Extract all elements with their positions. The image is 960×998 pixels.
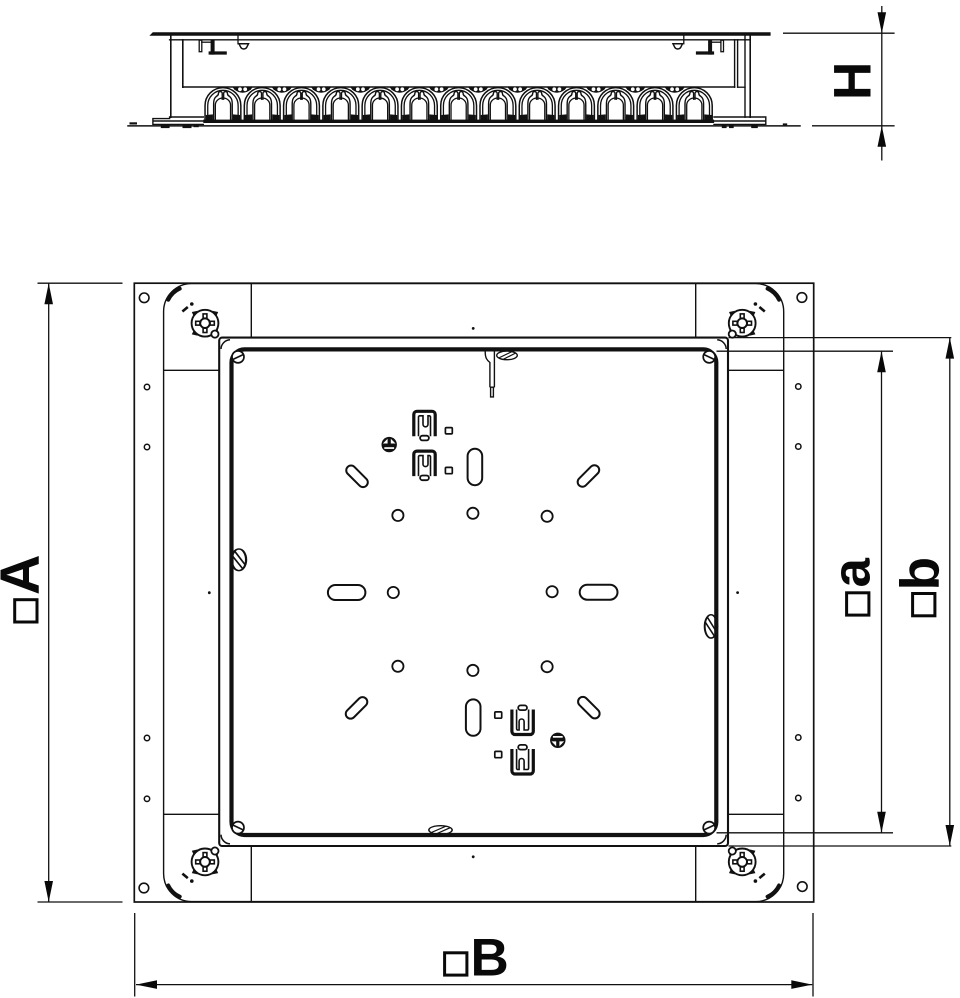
- svg-text:A: A: [0, 555, 51, 595]
- svg-text:a: a: [823, 558, 882, 588]
- svg-text:b: b: [889, 557, 951, 591]
- svg-text:H: H: [824, 62, 883, 100]
- svg-text:B: B: [471, 929, 509, 988]
